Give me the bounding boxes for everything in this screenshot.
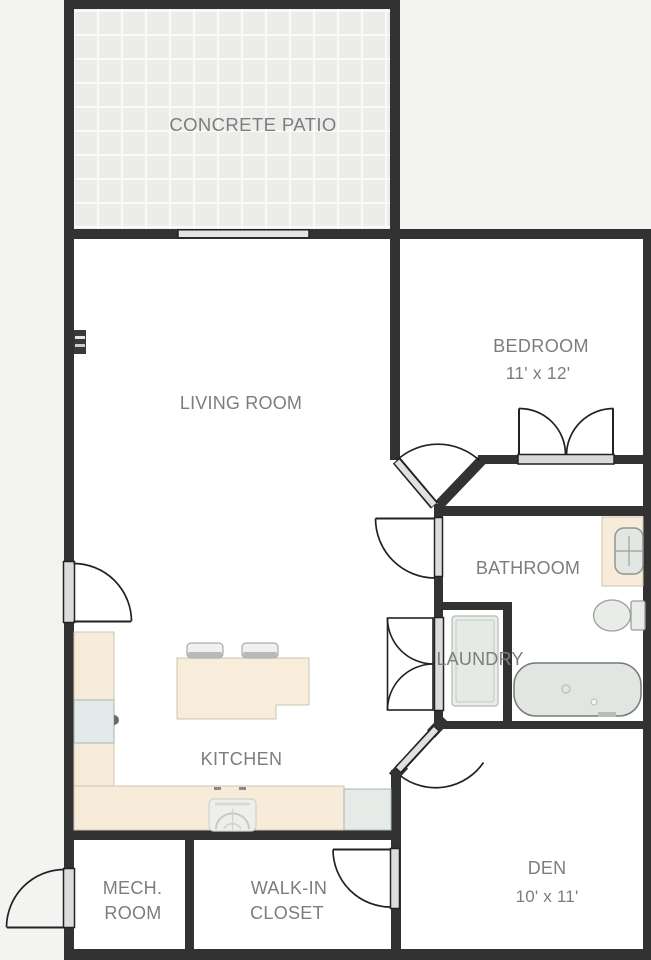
svg-text:BEDROOM: BEDROOM bbox=[493, 336, 589, 356]
svg-text:BATHROOM: BATHROOM bbox=[476, 558, 580, 578]
svg-text:LAUNDRY: LAUNDRY bbox=[436, 649, 523, 669]
svg-text:10' x 11': 10' x 11' bbox=[516, 887, 579, 906]
svg-text:11' x 12': 11' x 12' bbox=[506, 363, 571, 383]
svg-text:CONCRETE PATIO: CONCRETE PATIO bbox=[169, 114, 336, 135]
svg-text:ROOM: ROOM bbox=[104, 903, 161, 923]
svg-text:DEN: DEN bbox=[528, 858, 567, 878]
svg-text:KITCHEN: KITCHEN bbox=[201, 749, 283, 769]
svg-text:LIVING ROOM: LIVING ROOM bbox=[180, 393, 302, 413]
svg-text:WALK-IN: WALK-IN bbox=[251, 878, 327, 898]
svg-text:MECH.: MECH. bbox=[103, 878, 163, 898]
svg-text:CLOSET: CLOSET bbox=[250, 903, 324, 923]
